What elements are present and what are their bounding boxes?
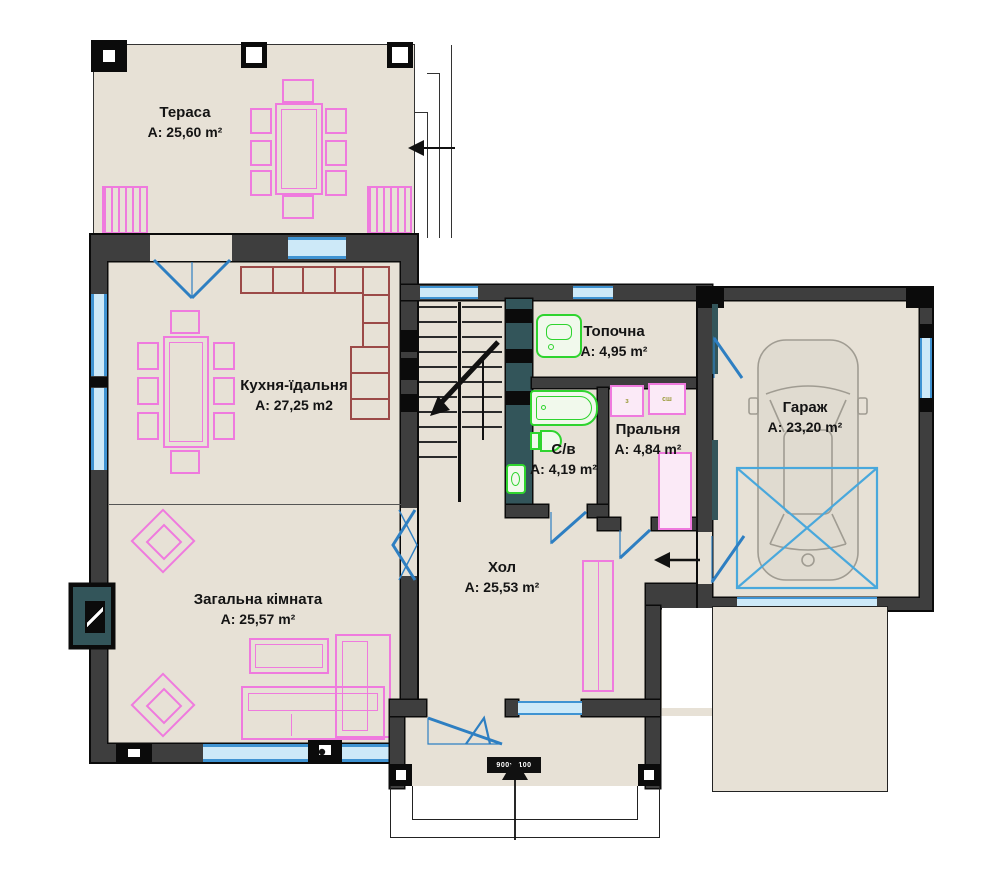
wall-block (401, 394, 417, 412)
wall-corner-block (638, 764, 660, 786)
living-hall-door-opening (401, 508, 417, 576)
boiler-window (573, 286, 613, 299)
armchair (128, 670, 200, 742)
room-area: A: 23,20 m² (745, 418, 865, 436)
bath-wall (588, 505, 608, 517)
kitchen-chair (170, 310, 200, 334)
laundry-cabinet (658, 452, 692, 530)
kitchen-side-window (91, 388, 107, 470)
room-name: Гараж (745, 398, 865, 418)
wall-corner-block (698, 288, 724, 308)
washer-tag: з (625, 398, 628, 405)
side-steps-line (427, 112, 428, 238)
side-steps-line (427, 73, 440, 74)
kitchen-counter (240, 266, 364, 294)
kitchen-chair (137, 412, 159, 440)
terrace-chair (325, 108, 347, 134)
entry-door-size-text: 900х2100 (496, 762, 531, 769)
terrace-planter (102, 186, 148, 234)
terrace-chair (325, 140, 347, 166)
side-steps-line (439, 73, 440, 238)
fireplace (70, 584, 114, 648)
wall-corner-block (906, 288, 932, 308)
wall-corner-block (390, 764, 412, 786)
sofa-arm (335, 634, 391, 738)
kitchen-counter (362, 266, 390, 348)
floor-plan: з сш 900х2100 (0, 0, 999, 883)
room-name: Пральня (586, 420, 710, 440)
kitchen-label: Кухня-їдальня A: 27,25 m2 (194, 376, 394, 414)
room-name: Хол (442, 558, 562, 578)
kitchen-chair (137, 377, 159, 405)
room-area: A: 27,25 m2 (194, 396, 394, 414)
garage-walls (698, 288, 932, 610)
wall-accent (712, 440, 718, 520)
kitchen-living-divider (109, 504, 401, 505)
laundry-wall (598, 518, 620, 530)
room-area: A: 4,84 m² (586, 440, 710, 458)
terrace-chair (325, 170, 347, 196)
bath-wall (506, 505, 548, 517)
wall-block (401, 358, 417, 380)
stairs-left-flight (419, 306, 457, 466)
wall-block (401, 330, 417, 352)
terrace-chair (250, 170, 272, 196)
terrace-label: Тераса A: 25,60 m² (105, 103, 265, 141)
room-name: Тераса (105, 103, 265, 123)
terrace-column (387, 42, 413, 68)
hall-label: Хол A: 25,53 m² (442, 558, 562, 596)
coffee-table (249, 638, 329, 674)
kitchen-chair (170, 450, 200, 474)
kitchen-side-window (91, 294, 107, 376)
room-area: A: 4,95 m² (548, 342, 680, 360)
garage-window (920, 338, 932, 398)
garage-hall-door-opening (698, 532, 712, 584)
kitchen-window (288, 237, 346, 259)
wall-corner-block (116, 744, 152, 762)
porch-wall (506, 700, 518, 716)
terrace-planter (367, 186, 412, 234)
terrace-table (275, 103, 323, 195)
side-steps-line (415, 112, 428, 113)
room-area: A: 4,19 m² (516, 460, 611, 478)
porch-window (518, 701, 582, 715)
boiler-label: Топочна A: 4,95 m² (548, 322, 680, 360)
terrace-chair (250, 140, 272, 166)
driveway-apron (712, 606, 888, 792)
porch-step (412, 786, 638, 820)
stairs-rail (482, 356, 484, 440)
terrace-door-opening (150, 235, 232, 261)
room-area: A: 25,60 m² (105, 123, 265, 141)
stairs-window (420, 286, 478, 299)
garage-label: Гараж A: 23,20 m² (745, 398, 865, 436)
terrace-chair (282, 195, 314, 219)
wall-accent (712, 304, 718, 374)
exterior-gap (662, 608, 712, 708)
terrace-chair (282, 79, 314, 103)
living-label: Загальна кімната A: 25,57 m² (153, 590, 363, 628)
laundry-label: Пральня A: 4,84 m² (586, 420, 710, 458)
terrace-column (241, 42, 267, 68)
wall-corner-block (308, 738, 342, 762)
armchair (128, 506, 200, 578)
window-mullion (91, 377, 107, 387)
porch-wall (582, 700, 660, 716)
room-area: A: 25,53 m² (442, 578, 562, 596)
room-name: Топочна (548, 322, 680, 342)
washing-machine: з (610, 385, 644, 417)
kitchen-chair (137, 342, 159, 370)
room-name: Загальна кімната (153, 590, 363, 610)
dryer-tag: сш (662, 396, 672, 403)
room-name: Кухня-їдальня (194, 376, 394, 396)
entry-door-size-tag: 900х2100 (487, 757, 541, 773)
wall-block (920, 398, 932, 412)
room-area: A: 25,57 m² (153, 610, 363, 628)
dryer: сш (648, 383, 686, 415)
porch-wall (390, 700, 426, 716)
stairs-divider (458, 302, 461, 502)
hall-wardrobe (582, 560, 614, 692)
terrace-corner-column (91, 40, 127, 72)
kitchen-chair (213, 342, 235, 370)
kitchen-chair (213, 412, 235, 440)
living-window (203, 744, 395, 762)
wall-block (920, 324, 932, 338)
side-steps-line (451, 45, 452, 238)
